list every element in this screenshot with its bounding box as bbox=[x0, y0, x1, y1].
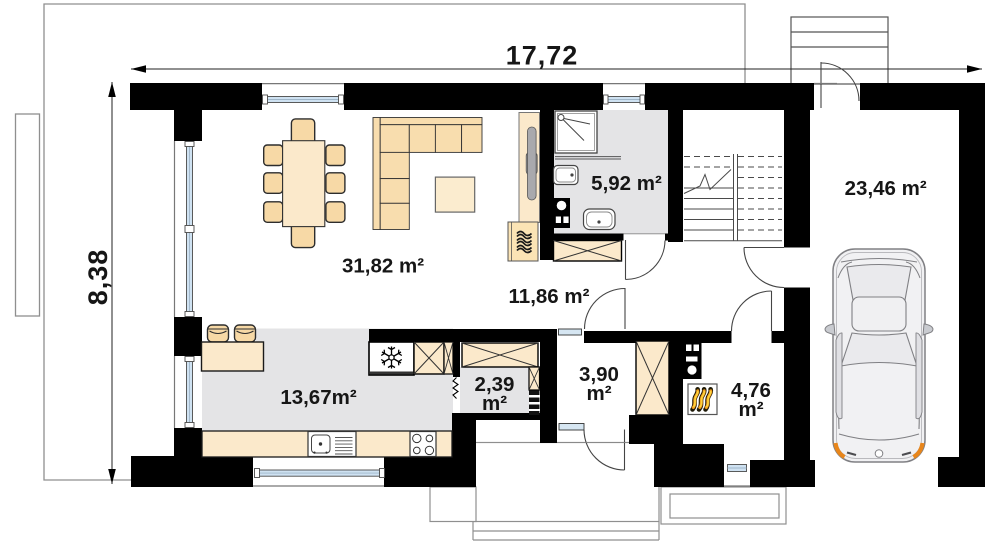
svg-text:17,72: 17,72 bbox=[506, 41, 579, 71]
svg-text:13,67m²: 13,67m² bbox=[280, 386, 357, 409]
svg-text:m²: m² bbox=[482, 392, 507, 415]
svg-text:m²: m² bbox=[738, 398, 763, 421]
svg-text:m²: m² bbox=[586, 382, 611, 405]
svg-text:5,92 m²: 5,92 m² bbox=[591, 172, 662, 195]
svg-text:8,38: 8,38 bbox=[83, 249, 113, 306]
svg-text:23,46 m²: 23,46 m² bbox=[845, 177, 927, 200]
svg-text:11,86 m²: 11,86 m² bbox=[509, 285, 590, 308]
svg-text:31,82 m²: 31,82 m² bbox=[342, 255, 424, 278]
